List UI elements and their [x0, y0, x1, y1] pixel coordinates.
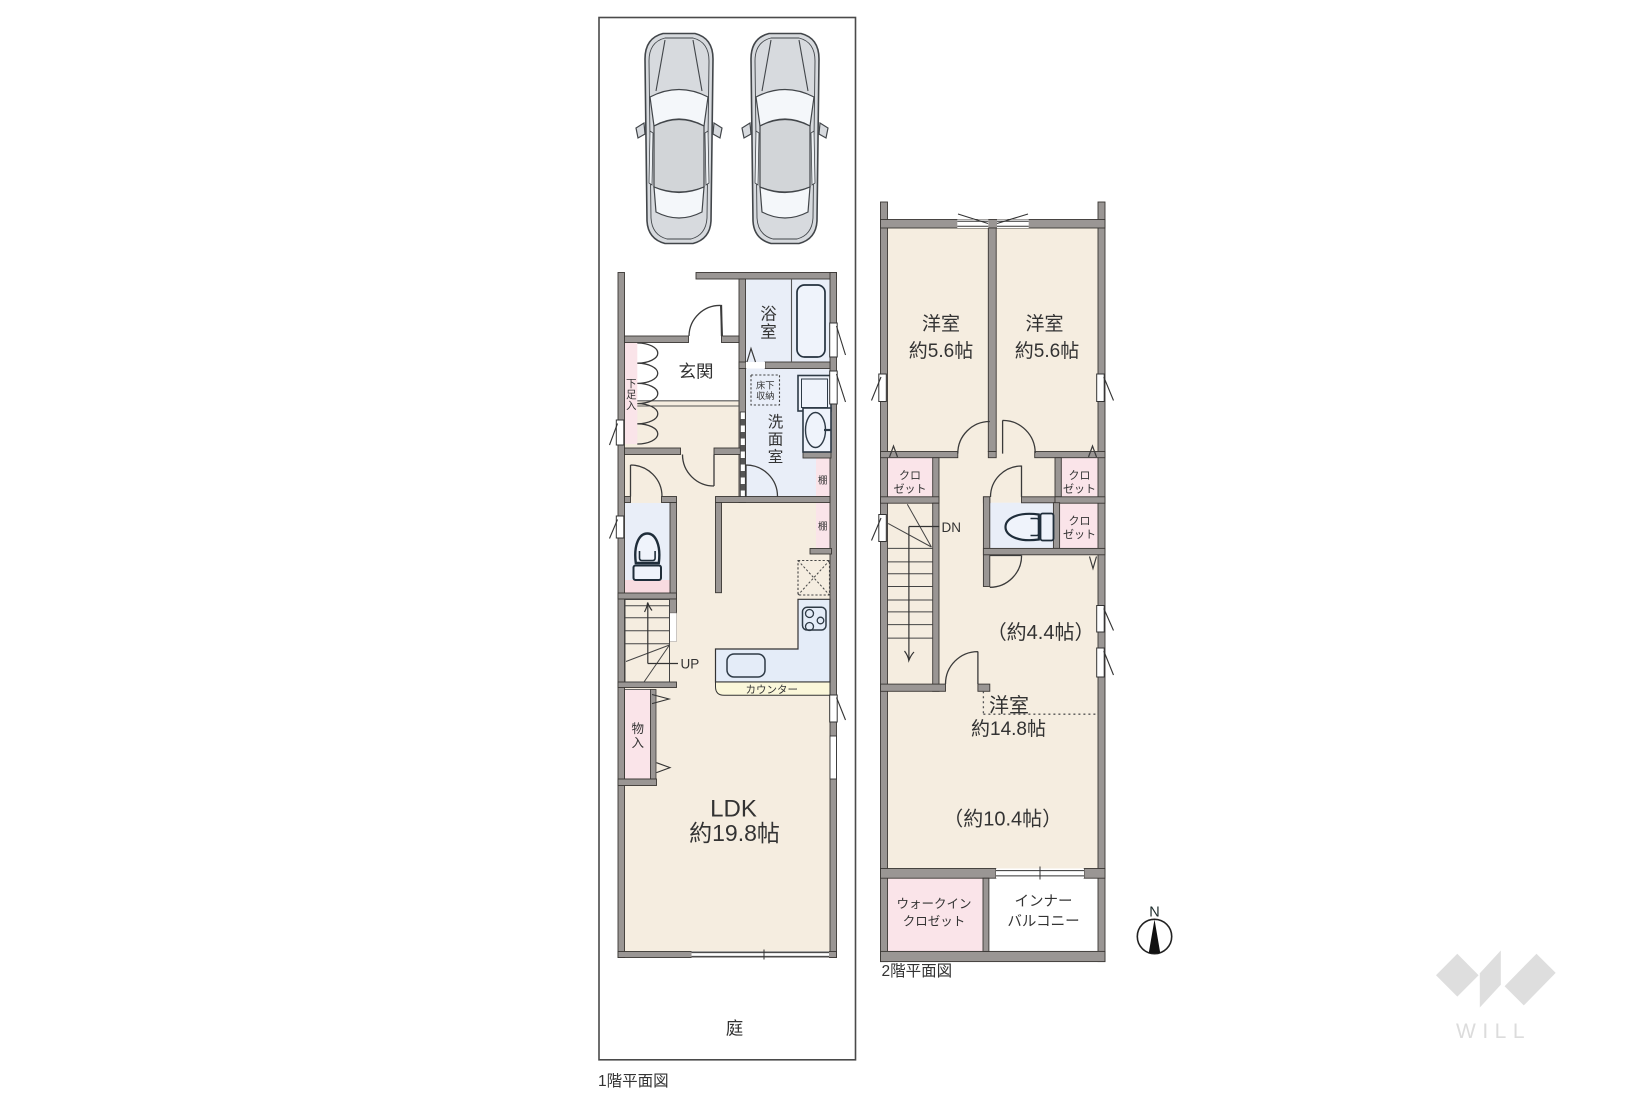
- svg-text:洗: 洗: [768, 413, 784, 431]
- svg-text:ゼット: ゼット: [1063, 528, 1096, 541]
- svg-text:約5.6帖: 約5.6帖: [909, 340, 973, 362]
- svg-text:ゼット: ゼット: [1063, 483, 1096, 496]
- svg-text:（約4.4帖）: （約4.4帖）: [987, 621, 1095, 644]
- svg-text:（約10.4帖）: （約10.4帖）: [943, 808, 1062, 831]
- svg-text:バルコニー: バルコニー: [1007, 914, 1079, 930]
- svg-text:2階平面図: 2階平面図: [882, 962, 953, 980]
- svg-text:洋室: 洋室: [1025, 313, 1063, 335]
- svg-text:庭: 庭: [726, 1019, 744, 1039]
- svg-text:LDK: LDK: [710, 796, 757, 823]
- svg-text:棚: 棚: [818, 475, 828, 487]
- svg-text:約5.6帖: 約5.6帖: [1015, 340, 1079, 362]
- svg-text:面: 面: [768, 432, 784, 449]
- svg-text:物: 物: [631, 722, 644, 736]
- svg-text:入: 入: [631, 736, 644, 750]
- svg-text:クロゼット: クロゼット: [903, 915, 966, 929]
- svg-text:約14.8帖: 約14.8帖: [971, 718, 1046, 740]
- svg-text:棚: 棚: [818, 521, 828, 533]
- svg-text:N: N: [1149, 905, 1159, 921]
- svg-text:WILL: WILL: [1456, 1020, 1531, 1043]
- svg-text:クロ: クロ: [1069, 515, 1091, 528]
- svg-text:玄関: 玄関: [679, 362, 714, 382]
- svg-text:UP: UP: [681, 657, 700, 672]
- svg-text:浴: 浴: [760, 305, 777, 324]
- svg-text:ゼット: ゼット: [894, 483, 927, 496]
- svg-text:室: 室: [760, 323, 777, 342]
- svg-text:室: 室: [768, 448, 784, 466]
- svg-text:クロ: クロ: [1069, 469, 1091, 482]
- svg-text:カウンター: カウンター: [746, 684, 799, 696]
- svg-text:床下: 床下: [756, 380, 775, 391]
- svg-text:クロ: クロ: [899, 469, 921, 482]
- svg-text:DN: DN: [942, 520, 962, 535]
- svg-text:洋室: 洋室: [922, 313, 960, 335]
- svg-text:洋室: 洋室: [989, 694, 1029, 717]
- svg-text:1階平面図: 1階平面図: [598, 1072, 669, 1090]
- svg-text:インナー: インナー: [1015, 894, 1073, 910]
- svg-text:ウォークイン: ウォークイン: [896, 897, 971, 911]
- svg-text:収納: 収納: [756, 390, 775, 401]
- svg-text:入: 入: [626, 400, 637, 412]
- svg-text:約19.8帖: 約19.8帖: [689, 820, 780, 846]
